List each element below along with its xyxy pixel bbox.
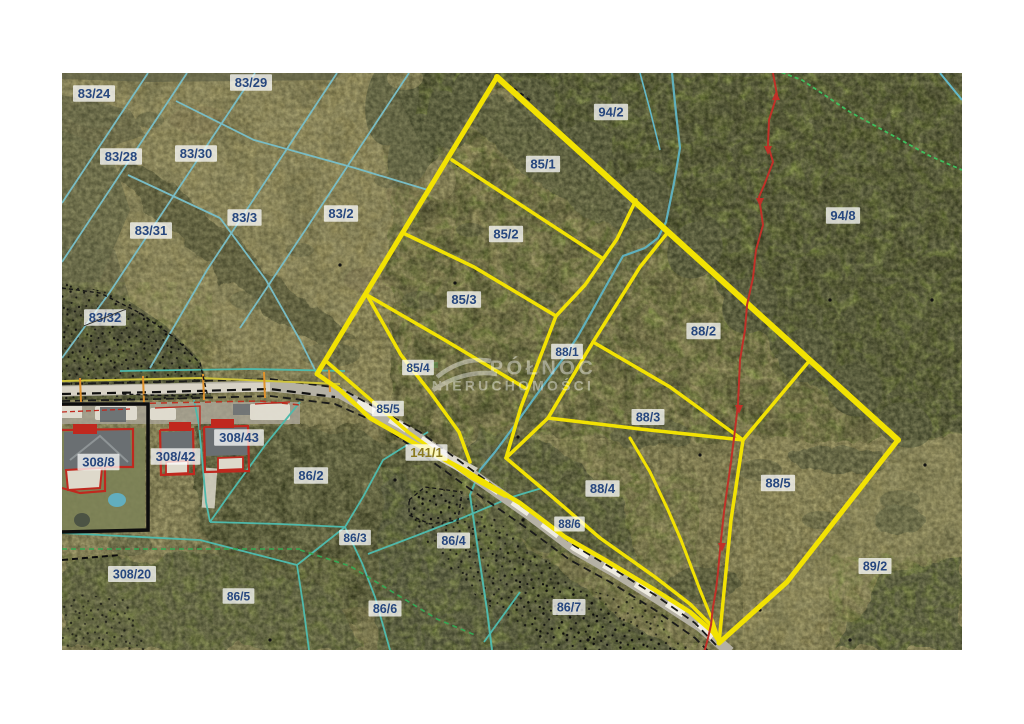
svg-text:NIERUCHOMOŚCI: NIERUCHOMOŚCI	[432, 377, 594, 394]
svg-text:85/3: 85/3	[451, 292, 476, 307]
svg-text:83/3: 83/3	[232, 210, 257, 225]
svg-text:86/3: 86/3	[343, 531, 367, 545]
svg-text:83/30: 83/30	[180, 146, 213, 161]
svg-text:88/6: 88/6	[558, 519, 580, 531]
svg-text:83/28: 83/28	[105, 149, 138, 164]
svg-text:88/2: 88/2	[691, 324, 716, 339]
svg-text:85/4: 85/4	[406, 361, 430, 375]
svg-text:86/4: 86/4	[441, 534, 465, 548]
svg-text:88/5: 88/5	[765, 476, 790, 491]
svg-text:308/20: 308/20	[113, 568, 151, 582]
svg-text:88/4: 88/4	[590, 481, 616, 496]
svg-text:308/8: 308/8	[82, 455, 115, 470]
svg-text:83/2: 83/2	[328, 206, 353, 221]
svg-text:94/8: 94/8	[830, 208, 855, 223]
svg-text:88/1: 88/1	[555, 345, 579, 359]
svg-text:89/2: 89/2	[863, 560, 887, 574]
svg-text:85/5: 85/5	[376, 402, 400, 416]
svg-text:86/5: 86/5	[227, 589, 251, 603]
svg-text:94/2: 94/2	[598, 105, 623, 120]
svg-text:88/3: 88/3	[636, 411, 660, 425]
svg-text:86/7: 86/7	[557, 601, 581, 615]
svg-text:141/1: 141/1	[410, 445, 443, 460]
svg-text:308/42: 308/42	[156, 449, 196, 464]
svg-text:85/2: 85/2	[493, 227, 518, 242]
svg-text:308/43: 308/43	[219, 430, 259, 445]
svg-text:86/2: 86/2	[298, 468, 323, 483]
svg-text:83/31: 83/31	[135, 223, 168, 238]
svg-text:86/6: 86/6	[373, 602, 397, 616]
svg-text:83/24: 83/24	[78, 86, 111, 101]
svg-text:85/1: 85/1	[530, 157, 555, 172]
svg-text:83/29: 83/29	[235, 75, 268, 90]
